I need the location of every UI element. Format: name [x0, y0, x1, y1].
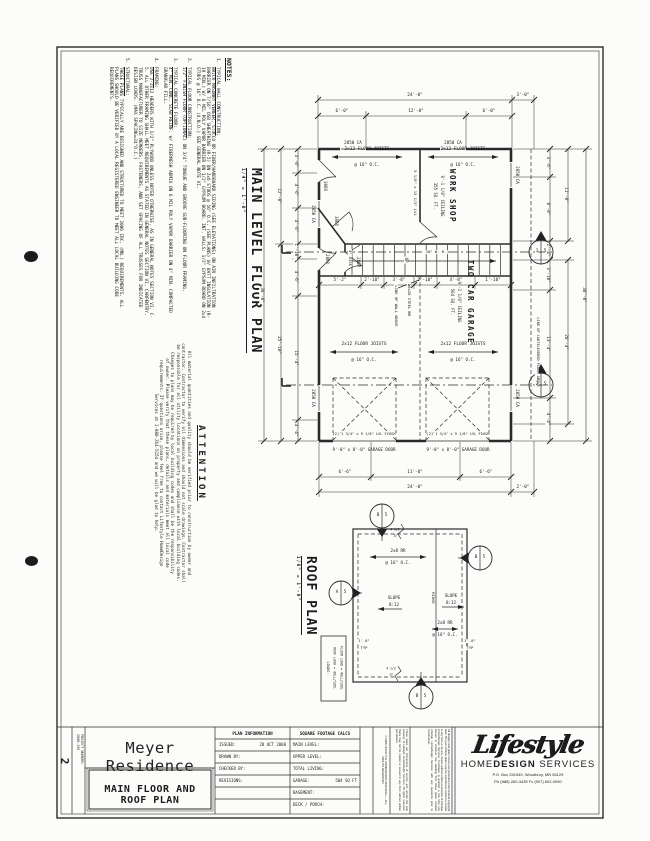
loads-label: ROOF LOAD = 40LL/10DL [332, 647, 335, 689]
dim-label: 3'-8" [393, 279, 406, 283]
section-marker-number: 1 [536, 250, 539, 255]
lvl-note: 5 1/8" x 13 1/2" LVL [413, 169, 417, 217]
note-item: 1.TYPICAL WALL CONSTRUCTION:BRICK MASONR… [194, 58, 220, 320]
dim-label: 24'-0" [407, 94, 423, 98]
blueprint-sheet: NOTES: 1.TYPICAL WALL CONSTRUCTION:BRICK… [0, 0, 650, 841]
main-plan-title: MAIN LEVEL FLOOR PLAN [246, 168, 263, 353]
joist-label: 2x12 FLOOR JOISTS [441, 148, 486, 152]
dim-label: 4'-8" [450, 279, 463, 283]
dim-label: 2'-10" [417, 279, 433, 283]
plan_information-row-label: REVISIONS: [219, 778, 243, 783]
door-label: 2868 [356, 257, 360, 267]
roof-marker-sheet: 5 [344, 591, 347, 595]
overhang-label: 1'-0" [463, 639, 476, 643]
dim-label: 15'-4" [293, 349, 297, 367]
window-label: 2850 CA [311, 389, 315, 407]
stair-up-label: UP [404, 257, 408, 264]
fine-print-column: These plans are instruments of service a… [391, 729, 408, 811]
window-label: 2850 CA [344, 141, 362, 145]
rafter-label: @ 16" O.C. [432, 633, 457, 637]
roof-plan-title: ROOF PLAN [301, 556, 318, 635]
roof-marker-sheet: 5 [483, 556, 486, 560]
lvl-note: (2) 1 3/4" x 9 1/8" LVL FLUSH [426, 433, 491, 437]
dim-label: 13'-4" [545, 335, 549, 353]
square_footage-row-label: TOTAL LIVING: [293, 766, 324, 771]
section-marker-number: 2 [536, 383, 539, 388]
pitch-label: 4 1/2 [386, 667, 396, 670]
hole-punch [25, 556, 38, 566]
plan-information-header: PLAN INFORMATION [215, 731, 290, 736]
loads-label: LOADS: [325, 662, 329, 675]
room-note: 504 SQ. FT. [450, 289, 454, 316]
fine-print-column: All designs and plans shown are protecte… [410, 729, 450, 811]
room-label-garage: TWO CAR GARAGE [466, 260, 474, 344]
dim-label: 25'-10" [276, 335, 280, 355]
attention-heading: ATTENTION [196, 330, 206, 596]
sheet-title: MAIN FLOOR AND ROOF PLAN [89, 784, 211, 806]
overhang-label: TYP [360, 646, 369, 650]
pitch-label: 12 [393, 534, 397, 537]
note-item: 4.FRAMING:USE 2-2x12 HEADERS WITH 1/2" P… [132, 58, 158, 320]
dim-label: 2'-10" [364, 279, 380, 283]
dim-label: 4'-4" [545, 412, 549, 427]
window-label: 2850 CA [515, 389, 519, 407]
square_footage-row-label: MAIN LEVEL: [293, 742, 320, 747]
logo-lifestyle-script: Lifestyle [454, 730, 601, 759]
dim-label: 6'-0" [483, 110, 496, 114]
dim-label: 8'-0" [545, 202, 549, 217]
dim-label: 4'-6" [293, 219, 297, 234]
plan_information-row-label: DRAWN BY: [219, 754, 241, 759]
room-note: 355 SQ. FT. [433, 183, 437, 210]
rafter-label: 2x8 RR [390, 549, 405, 553]
steel-beam-note: W8x28 STEEL BM [407, 283, 411, 317]
dim-label: 11'-0" [563, 186, 567, 204]
joist-label: 2x12 FLOOR JOISTS [441, 343, 486, 347]
dim-label: 20'-4" [563, 333, 567, 351]
overhang-label: TYP [466, 646, 475, 650]
roof-plan-scale: 1/8" = 1'-0" [295, 556, 300, 668]
dim-label: 38'-0" [581, 286, 585, 304]
roof-plan-title-block: ROOF PLAN 1/8" = 1'-0" [292, 556, 318, 668]
main-plan-title-block: MAIN LEVEL FLOOR PLAN 1/4" = 1'-0" [236, 168, 263, 390]
door-label: 2868 [325, 254, 329, 264]
roof-marker-letter: B [475, 556, 478, 560]
joist-label: @ 16" O.C. [351, 358, 376, 362]
square_footage-row-label: DECK / PORCH: [293, 802, 324, 807]
hole-punch [24, 251, 38, 262]
section-marker-sheet: 5 [544, 250, 547, 255]
pitch-label: 12 [389, 673, 393, 676]
dim-label: 4'-6" [293, 270, 297, 285]
rafter-label: @ 16" O.C. [385, 561, 410, 565]
door-label: 3068 [323, 181, 327, 191]
joist-label: 2x12 FLOOR JOISTS [345, 148, 390, 152]
square_footage-row-label: BASEMENT: [293, 790, 315, 795]
dim-label: 1'-10" [485, 279, 501, 283]
dim-label: 38'-0" [259, 286, 263, 304]
slope-label: 8:12 [446, 601, 456, 605]
logo-services: SERVICES [536, 759, 596, 770]
dim-label: 12'-0" [276, 187, 280, 205]
joist-label: @ 16" O.C. [450, 163, 475, 167]
loads-label: FLOOR LOAD = 40LL/10DL [339, 646, 342, 690]
dim-label: 3'-6" [545, 156, 549, 171]
dim-label: 6'-6" [480, 471, 493, 475]
joist-label: @ 16" O.C. [450, 358, 475, 362]
slope-label: SLOPE [445, 594, 458, 598]
ridge-label: RIDGE [431, 591, 435, 604]
slope-label: 8:12 [389, 603, 399, 607]
lvl-note: (2) 1 3/4" x 9 1/8" LVL FLUSH [332, 433, 397, 437]
note-item: 3.TYPICAL CONCRETE FLOOR:4" MIN. CONC. S… [161, 58, 177, 320]
joist-label: 2x12 FLOOR JOISTS [342, 343, 387, 347]
project-number: PROJECT NUMBER: 2008-195 [72, 734, 84, 794]
room-note: 9'-1 1/8" CEILING [457, 282, 461, 323]
roof-marker-sheet: 5 [385, 514, 388, 518]
notes-block: NOTES: 1.TYPICAL WALL CONSTRUCTION:BRICK… [88, 58, 232, 320]
rise-note: 4" RISE [348, 249, 352, 267]
dim-label: 4'-4" [293, 423, 297, 438]
square_footage-row-value: 504 SQ FT [293, 778, 357, 783]
joist-label: @ 16" O.C. [354, 163, 379, 167]
logo-homedesign-services: HOMEDESIGN SERVICES [457, 759, 599, 770]
cantilever-note: LINE OF CANTILEVERED FLOOR ABOVE [535, 316, 539, 387]
pitch-label: 4 1/2 [390, 528, 400, 531]
dim-label: 6'-6" [339, 471, 352, 475]
room-note: 9'-1 1/8" CEILING [440, 176, 444, 217]
logo-phone: Ph (888) 260-3439 Fx (507) 602-0090 [457, 779, 599, 784]
stair-note: 10" W. R. [425, 250, 448, 254]
rafter-label: 2x8 RR [437, 621, 452, 625]
plan_information-row-value: 28 OCT 2008 [219, 742, 286, 747]
logo-design: DESIGN [493, 759, 535, 770]
dim-label: 6'-0" [336, 110, 349, 114]
dim-label: 3'-10" [545, 266, 549, 284]
dim-label: 1'-10" [293, 242, 297, 260]
window-label: 2850 CA [444, 141, 462, 145]
notes-heading: NOTES: [224, 58, 232, 320]
door-label: 3068 [334, 216, 338, 226]
attention-body: All material quantities and quality shou… [153, 330, 192, 596]
sheet-number: 2 [58, 750, 71, 772]
slope-label: SLOPE [388, 596, 401, 600]
window-label: 2850 CA [515, 166, 519, 184]
notes-list: 1.TYPICAL WALL CONSTRUCTION:BRICK MASONR… [108, 58, 221, 320]
roof-marker-sheet: 5 [424, 695, 427, 699]
dim-label: 3'-0" [517, 94, 530, 98]
dim-label: 3'-0" [293, 154, 297, 169]
note-item: 2.TYPICAL FLOOR CONSTRUCTION:1/2" FINISH… [181, 58, 191, 320]
wall-above-note: LINE OF WALL ABOVE [394, 284, 398, 327]
attention-block: ATTENTION All material quantities and qu… [140, 330, 206, 596]
window-label: 2850 CA [311, 205, 315, 223]
plan_information-row-label: CHECKED BY: [219, 766, 246, 771]
dim-label: 12'-0" [408, 110, 424, 114]
garage-door-label: 9'-0" x 8'-0" GARAGE DOOR [332, 448, 395, 452]
dim-label: 4'-6" [293, 183, 297, 198]
room-label-workshop: WORK SHOP [448, 169, 456, 223]
square-footage-header: SQUARE FOOTAGE CALCS [290, 731, 360, 736]
dim-label: 11'-0" [407, 471, 423, 475]
garage-door-label: 9'-0" x 8'-0" GARAGE DOOR [426, 448, 489, 452]
dim-label: 24'-0" [407, 486, 423, 490]
client-name: Meyer Residence [85, 739, 215, 775]
roof-marker-letter: B [416, 695, 419, 699]
logo-home: HOME [461, 759, 494, 770]
dim-label: 2'-0" [517, 486, 530, 490]
dim-label: 5'-2" [334, 279, 347, 283]
roof-marker-letter: B [377, 514, 380, 518]
note-item: 5.STRUCTURAL:THESE PLANS TYPICALLY ARE D… [108, 58, 129, 320]
logo-address: P.O. Box 251949, Woodbury, MN 55129 [457, 772, 599, 777]
roof-marker-letter: A [336, 591, 339, 595]
copyright-strip: © 2008 LIFESTYLE HOMEDESIGN SERVICES — A… [375, 731, 387, 809]
section-marker-sheet: 5 [544, 383, 547, 388]
main-plan-scale: 1/4" = 1'-0" [240, 168, 245, 390]
square_footage-row-label: UPPER LEVEL: [293, 754, 322, 759]
overhang-label: 1'-0" [357, 639, 370, 643]
project-number-label: PROJECT NUMBER: [80, 734, 84, 794]
